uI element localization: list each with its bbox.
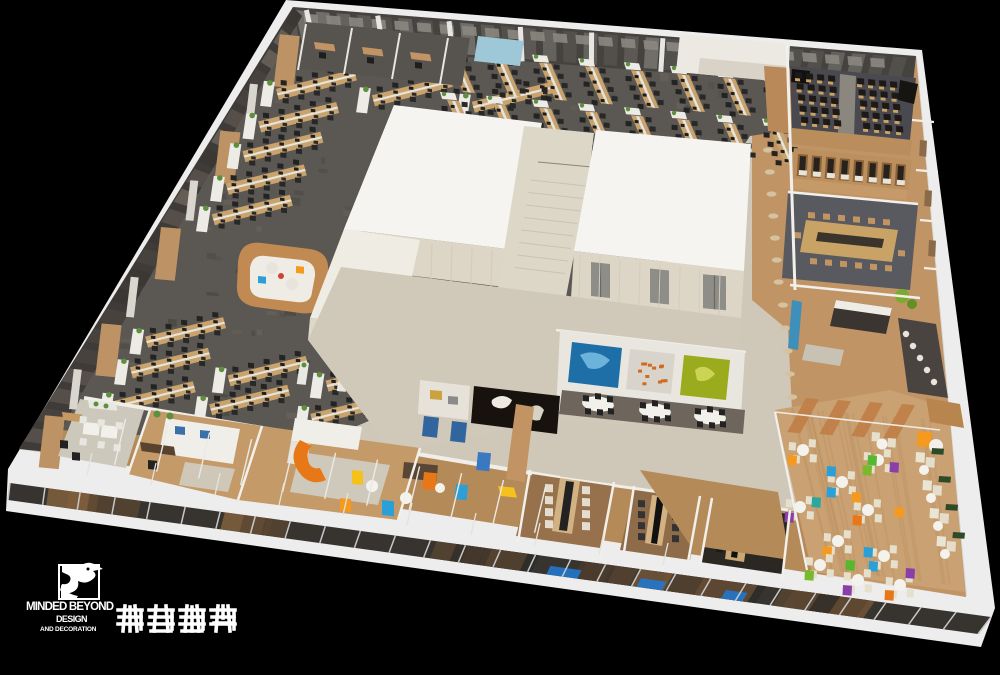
svg-text:DESIGN: DESIGN [56, 614, 89, 624]
svg-text:MINDED BEYOND: MINDED BEYOND [26, 601, 114, 613]
svg-text:AND DECORATION: AND DECORATION [40, 626, 97, 633]
